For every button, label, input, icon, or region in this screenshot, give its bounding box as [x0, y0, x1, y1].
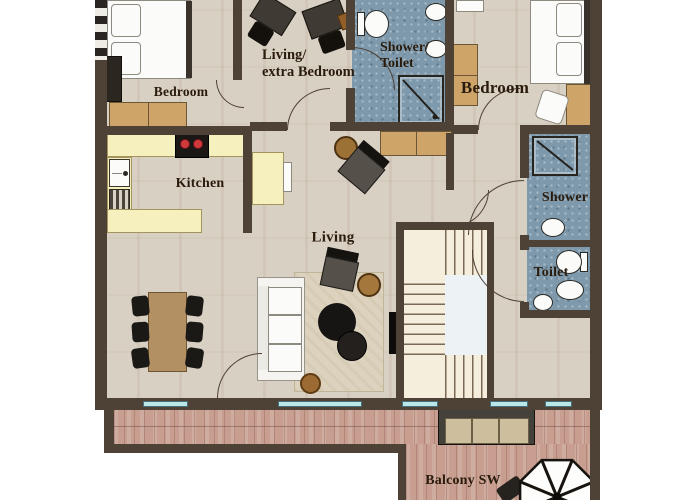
label-bedroom-right: Bedroom	[461, 78, 529, 98]
kitchen-sink	[109, 159, 130, 187]
label-line: Shower/	[380, 40, 429, 56]
dining-chair	[131, 347, 151, 369]
wall-extra-bath	[346, 0, 355, 50]
dining-chair	[131, 321, 149, 342]
wall-balcony-sw-left	[398, 444, 406, 500]
floor-plan: Bedroom Living/ extra Bedroom Shower/ To…	[0, 0, 700, 500]
shower-tray-right	[532, 136, 578, 176]
wall-stair-right	[487, 222, 494, 398]
side-table-round	[357, 273, 381, 297]
wall-balcony-strip-bottom	[104, 444, 406, 453]
wall-extra-bottom	[330, 122, 452, 131]
chair-white	[456, 0, 484, 12]
sideboard-divider	[416, 132, 417, 155]
window-bottom	[545, 401, 572, 407]
sofa	[257, 277, 305, 381]
stair-landing	[445, 275, 487, 355]
stool-round	[300, 373, 321, 394]
basin-divider	[112, 173, 122, 174]
bed-left-frame	[186, 1, 192, 78]
label-line: extra Bedroom	[262, 64, 355, 81]
pillow	[556, 3, 582, 37]
coffee-table-small	[337, 331, 367, 361]
shower-tray-top	[398, 75, 444, 125]
label-balcony-sw: Balcony SW	[425, 473, 501, 489]
burner	[193, 139, 203, 149]
wall-shower-toilet	[520, 240, 592, 247]
sink	[533, 294, 553, 311]
window-left	[95, 0, 107, 60]
wall-hall-living	[446, 133, 454, 190]
dining-chair	[185, 347, 205, 369]
label-living: Living	[312, 230, 355, 247]
label-bedroom-left: Bedroom	[154, 84, 208, 100]
wall-bed2-bottom	[520, 125, 592, 134]
sink	[425, 3, 447, 21]
pillow	[111, 4, 141, 37]
dining-chair	[185, 295, 204, 317]
label-kitchen: Kitchen	[176, 176, 225, 192]
dresser-divider	[148, 103, 149, 127]
stair-treads-bottom	[445, 355, 487, 398]
window-bottom	[278, 401, 362, 407]
label-toilet: Toilet	[534, 265, 569, 281]
window-bottom	[143, 401, 188, 407]
wall-bed2-bottom	[452, 125, 478, 134]
sofa-cushion	[268, 344, 302, 372]
sofa-cushion	[268, 315, 302, 344]
window-bottom	[402, 401, 438, 407]
window-bottom	[490, 401, 528, 407]
label-shower: Shower	[542, 190, 588, 206]
wall-bath-left	[520, 133, 529, 178]
wall-right	[590, 0, 602, 410]
armchair-seat	[320, 256, 359, 292]
wall-bath-bed2	[445, 0, 454, 130]
wall-extra-bottom	[250, 122, 287, 131]
burner	[180, 139, 190, 149]
label-living-extra-bedroom: Living/ extra Bedroom	[262, 47, 355, 81]
dining-chair	[185, 321, 204, 342]
faucet	[123, 171, 128, 176]
wall-extra-bath	[346, 88, 355, 125]
dining-table	[148, 292, 187, 372]
pillow	[556, 42, 582, 76]
wall-bed1-extra	[233, 0, 242, 80]
stove	[175, 132, 209, 158]
kitchen-counter-bottom	[107, 209, 202, 233]
bidet	[556, 280, 584, 300]
tv	[389, 312, 396, 354]
wall-stair-left	[396, 222, 404, 398]
cabinet-divider	[453, 75, 477, 76]
wall-kitchen-living	[243, 126, 252, 233]
label-line: Toilet	[380, 56, 429, 72]
label-line: Living/	[262, 47, 355, 64]
sink	[541, 218, 565, 237]
sofa-cushion	[268, 287, 302, 315]
sideboard-cream	[252, 152, 284, 205]
toilet-bowl	[364, 10, 389, 38]
wall-left	[95, 0, 107, 410]
dining-chair	[131, 295, 150, 317]
outdoor-sofa	[438, 406, 535, 445]
label-shower-toilet: Shower/ Toilet	[380, 40, 429, 72]
stair-treads-left	[404, 275, 445, 355]
cushion	[472, 418, 499, 444]
wall-balcony-right	[590, 410, 600, 500]
cushion	[445, 418, 472, 444]
sideboard-stub	[283, 162, 292, 192]
cushion	[499, 418, 529, 444]
wall-bed1-kitchen	[95, 126, 252, 135]
wall-toilet-bottom	[520, 310, 596, 318]
